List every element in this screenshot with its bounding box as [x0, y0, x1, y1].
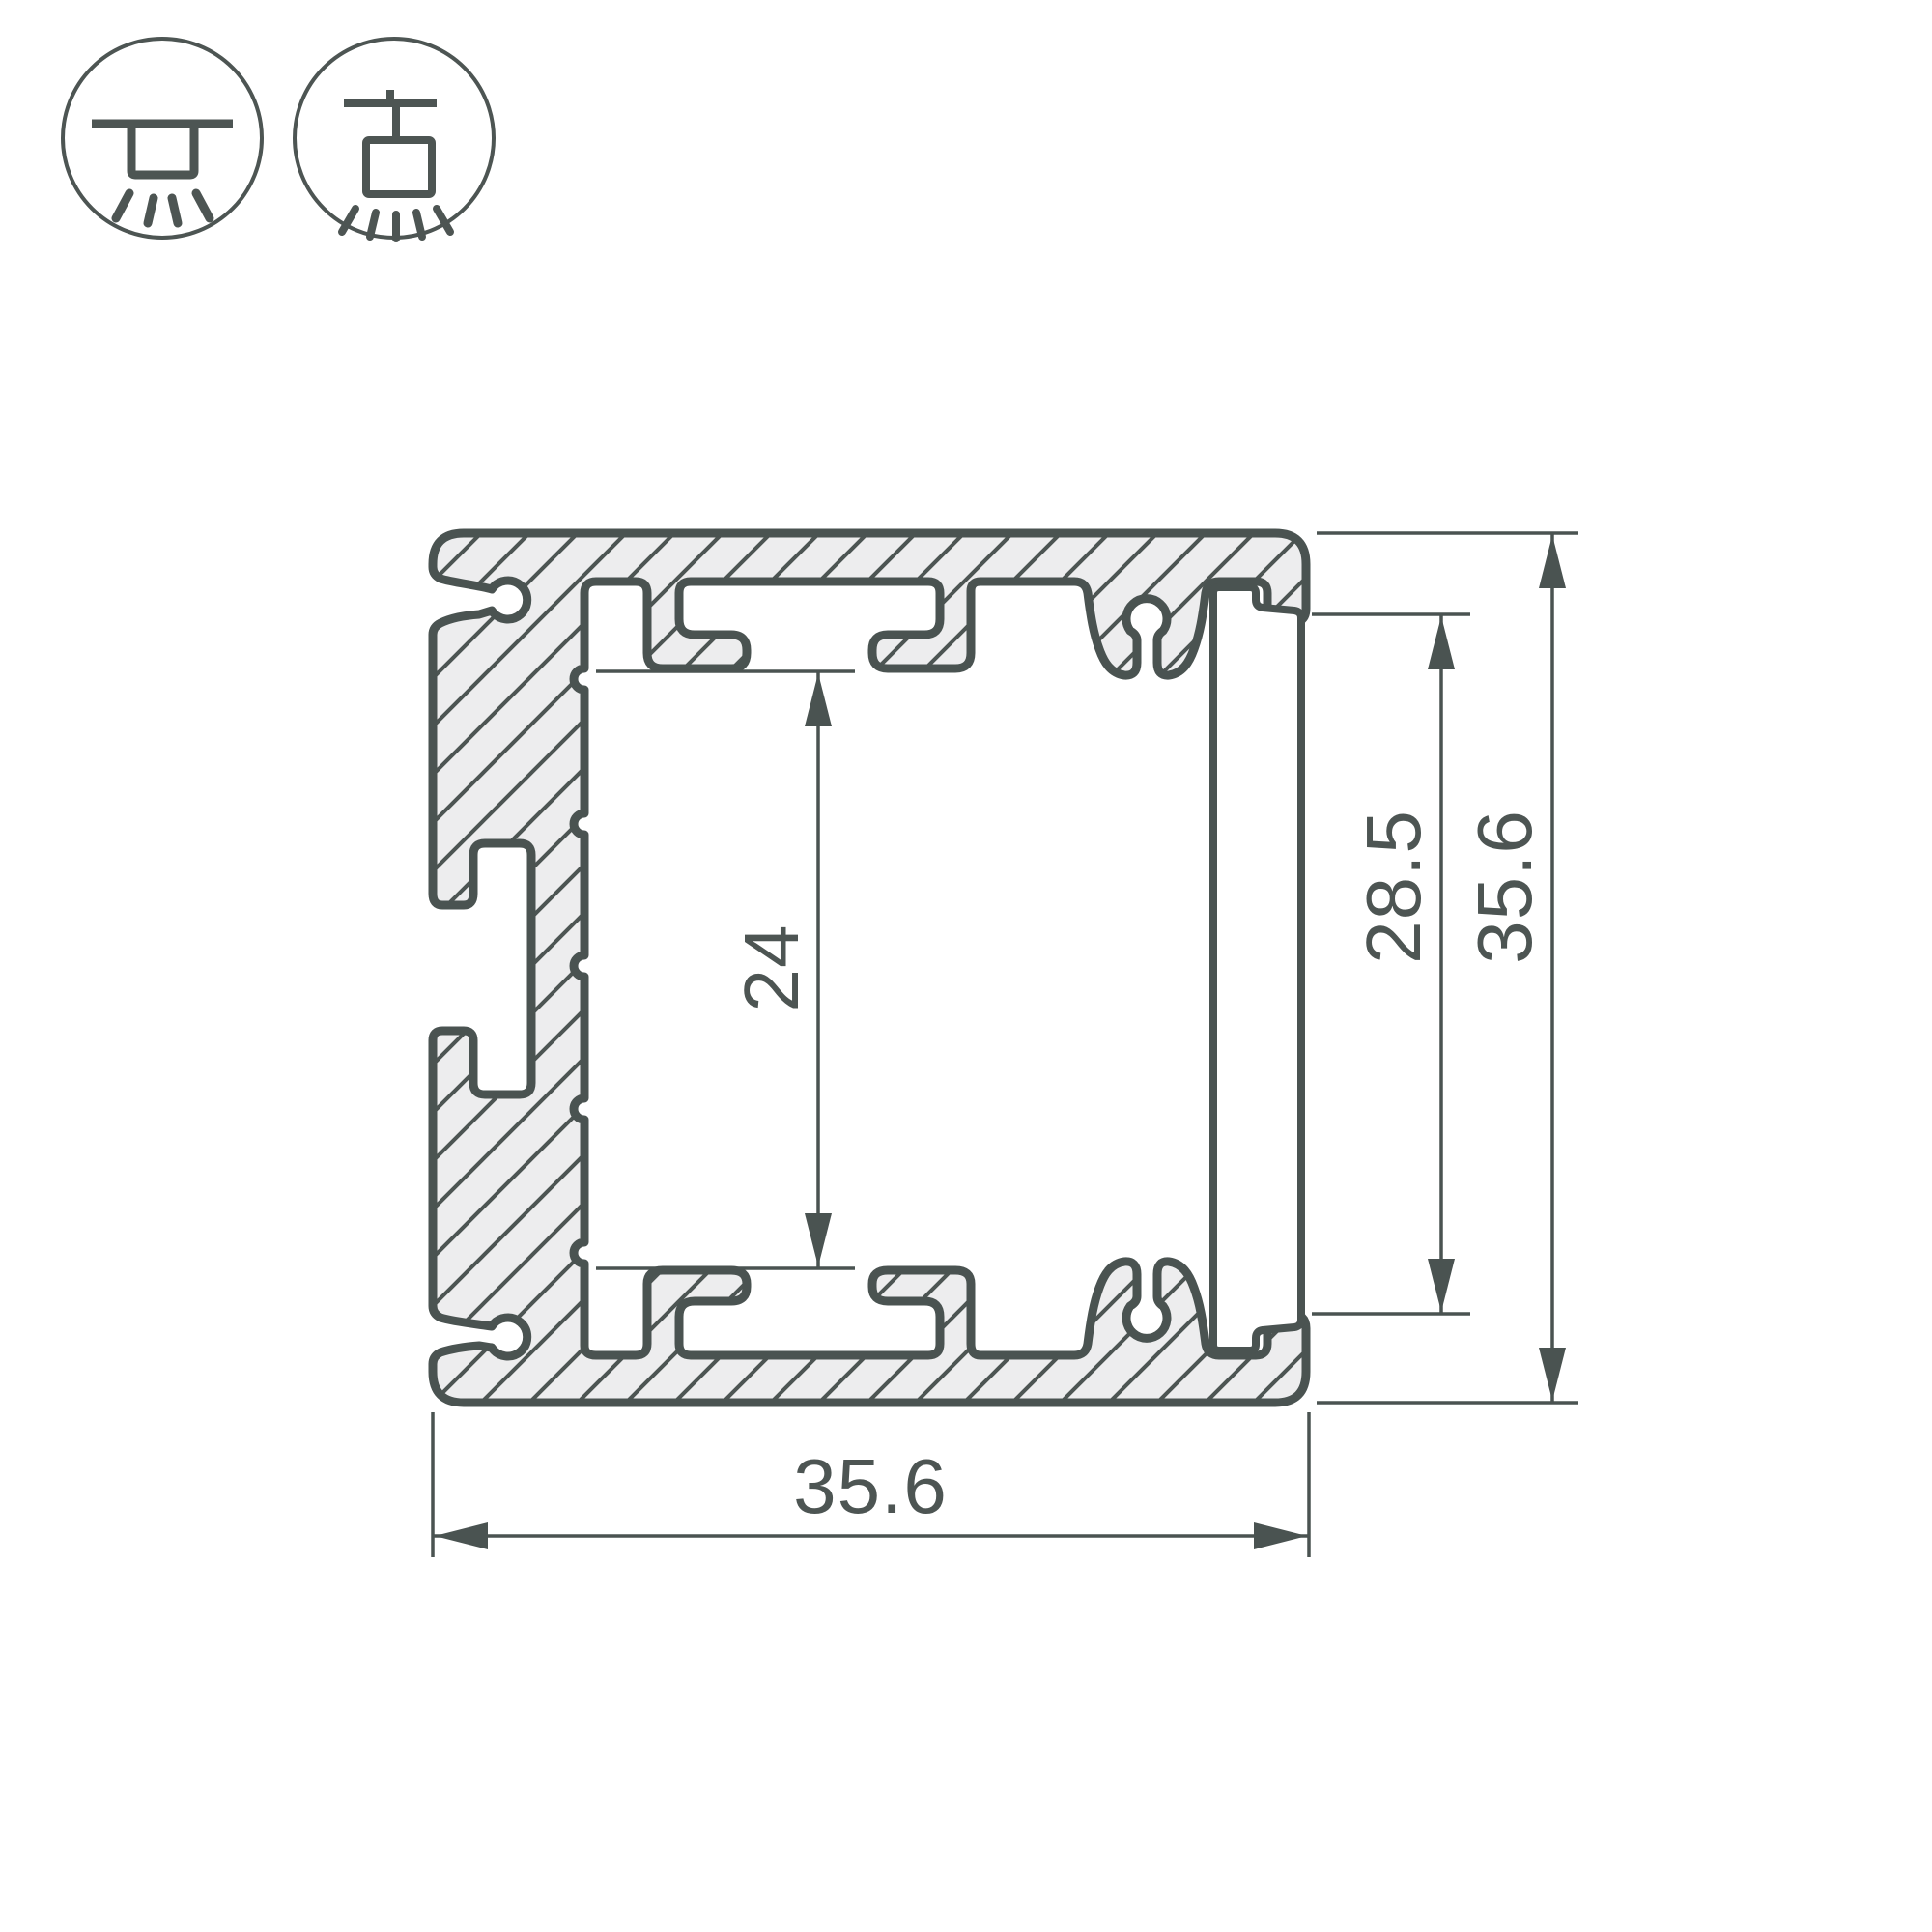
dimension-inner-height — [596, 671, 855, 1268]
diffuser-height-label: 28.5 — [1350, 810, 1436, 964]
icon-circle — [63, 39, 262, 238]
arrowhead-down — [805, 1213, 832, 1266]
arrowhead-up — [1539, 535, 1566, 588]
profile-body — [433, 533, 1306, 1403]
diffuser-plate — [1213, 587, 1301, 1350]
fixture-box — [366, 140, 432, 194]
pendant-mount-icon — [295, 39, 494, 239]
arrowhead-left — [435, 1522, 488, 1549]
arrowhead-down — [1428, 1259, 1455, 1312]
arrowhead-right — [1254, 1522, 1307, 1549]
arrowhead-up — [1428, 616, 1455, 669]
drawing-page: 24 28.5 35.6 35.6 — [0, 0, 1932, 1932]
fixture-box — [131, 122, 194, 175]
light-rays — [116, 193, 210, 223]
arrowhead-up — [805, 673, 832, 726]
outer-height-label: 35.6 — [1462, 810, 1548, 964]
technical-drawing: 24 28.5 35.6 35.6 — [0, 0, 1932, 1932]
light-rays — [342, 209, 450, 239]
surface-mount-icon — [63, 39, 262, 238]
arrowhead-down — [1539, 1348, 1566, 1401]
inner-height-label: 24 — [728, 924, 814, 1012]
outer-width-label: 35.6 — [793, 1443, 948, 1529]
